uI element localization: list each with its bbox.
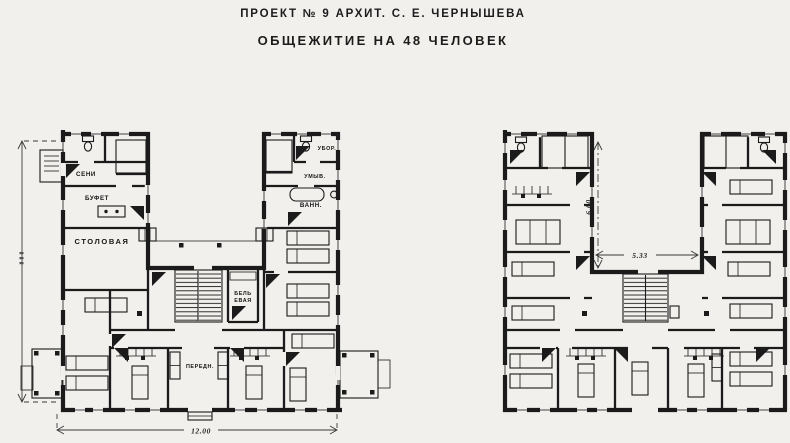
dimension-overall-width: 12.00 bbox=[191, 427, 211, 436]
door-swing-icon bbox=[266, 274, 280, 288]
bed-icon bbox=[730, 372, 772, 386]
service-staircase bbox=[266, 140, 292, 173]
wardrobe-icon bbox=[170, 352, 180, 379]
room-label-umyv: УМЫВ. bbox=[304, 174, 326, 180]
left-floor-plan: СЕНИ БУФЕТ СТОЛОВАЯ УБОР. УМЫВ. ВАНН. БЕ… bbox=[18, 130, 390, 436]
bed-icon bbox=[632, 362, 648, 395]
bed-icon bbox=[726, 220, 770, 244]
bed-icon bbox=[66, 376, 108, 390]
column bbox=[582, 311, 587, 316]
door-swing-icon bbox=[114, 348, 128, 362]
bed-icon bbox=[246, 366, 262, 399]
room-label-seni: СЕНИ bbox=[76, 171, 96, 178]
bed-icon bbox=[85, 298, 127, 312]
table-icon bbox=[512, 186, 552, 198]
bed-icon bbox=[730, 180, 772, 194]
door-swing-icon bbox=[286, 352, 300, 366]
lower-left-porch bbox=[21, 349, 65, 398]
bench bbox=[670, 306, 679, 318]
drawing-sheet: ПРОЕКТ № 9 АРХИТ. С. Е. ЧЕРНЫШЕВА ОБЩЕЖИ… bbox=[0, 0, 790, 443]
bed-icon bbox=[510, 374, 552, 388]
bottom-rooms-furniture bbox=[66, 334, 334, 420]
room-label-bufet: БУФЕТ bbox=[85, 195, 109, 202]
right-plan-outer-walls bbox=[503, 130, 787, 412]
coat-rack-icon bbox=[566, 348, 606, 360]
porch-steps bbox=[378, 360, 390, 388]
door-swing-icon bbox=[130, 206, 144, 220]
bed-icon bbox=[292, 334, 334, 348]
right-plan-right-wing-furniture bbox=[702, 172, 772, 318]
bed-icon bbox=[287, 302, 329, 316]
door-swing-icon bbox=[756, 348, 770, 362]
room-label-stolovaya: СТОЛОВАЯ bbox=[74, 237, 129, 246]
courtyard-terrace bbox=[139, 228, 273, 248]
bed-icon bbox=[730, 304, 772, 318]
bed-icon bbox=[290, 368, 306, 401]
door-swing-icon bbox=[542, 348, 556, 362]
door-swing-icon bbox=[232, 306, 246, 320]
door-swing-icon bbox=[112, 334, 126, 348]
room-label-vann: ВАНН. bbox=[300, 202, 322, 209]
column bbox=[137, 311, 142, 316]
main-staircase bbox=[137, 270, 222, 322]
column bbox=[704, 311, 709, 316]
toilet-icon bbox=[83, 136, 94, 151]
floor-plans-drawing: СЕНИ БУФЕТ СТОЛОВАЯ УБОР. УМЫВ. ВАНН. БЕ… bbox=[0, 0, 790, 443]
wardrobe-icon bbox=[712, 354, 722, 381]
bed-icon bbox=[730, 352, 772, 366]
bed-icon bbox=[287, 284, 329, 298]
door-swing-icon bbox=[296, 146, 310, 160]
wardrobe-icon bbox=[218, 352, 228, 379]
bed-icon bbox=[516, 220, 560, 244]
terrace-post bbox=[217, 243, 222, 248]
bed-icon bbox=[132, 366, 148, 399]
right-plan-wing-stairs bbox=[510, 136, 776, 168]
bed-icon bbox=[728, 262, 770, 276]
right-plan-main-staircase bbox=[582, 274, 709, 322]
toilet-icon bbox=[759, 137, 770, 152]
toilet-icon bbox=[516, 137, 527, 152]
lower-right-porch bbox=[336, 351, 390, 398]
bed-icon bbox=[512, 306, 554, 320]
bathtub-icon bbox=[290, 188, 324, 201]
dimension-courtyard-width: 5.33 bbox=[632, 251, 648, 260]
door-swing-icon bbox=[152, 272, 166, 286]
terrace-post bbox=[179, 243, 184, 248]
room-label-perednyaya: ПЕРЕДН. bbox=[186, 364, 214, 370]
right-floor-plan: 6.00 5.33 bbox=[502, 130, 788, 413]
room-label-belyevaya-1: БЕЛЬ bbox=[234, 291, 252, 297]
linen-shelves bbox=[230, 272, 256, 280]
room-label-ubor: УБОР. bbox=[318, 146, 337, 152]
door-swing-icon bbox=[576, 172, 590, 186]
room-label-belyevaya-2: ЕВАЯ bbox=[234, 298, 251, 304]
right-plan-bottom-rooms-furniture bbox=[510, 348, 772, 397]
buffet-counter bbox=[98, 206, 125, 217]
bed-icon bbox=[287, 231, 329, 245]
dimension-courtyard-depth: 6.00 bbox=[584, 199, 593, 215]
door-swing-icon bbox=[230, 348, 244, 362]
service-staircase bbox=[116, 140, 146, 173]
bed-icon bbox=[578, 364, 594, 397]
right-plan-interior-walls bbox=[505, 134, 785, 410]
door-swing-icon bbox=[576, 256, 590, 270]
door-swing-icon bbox=[288, 212, 302, 226]
bed-icon bbox=[512, 262, 554, 276]
porch-steps bbox=[21, 366, 33, 390]
bed-icon bbox=[287, 249, 329, 263]
courtyard-dimensions: 6.00 5.33 bbox=[584, 142, 698, 268]
bed-icon bbox=[688, 364, 704, 397]
bed-icon bbox=[66, 356, 108, 370]
